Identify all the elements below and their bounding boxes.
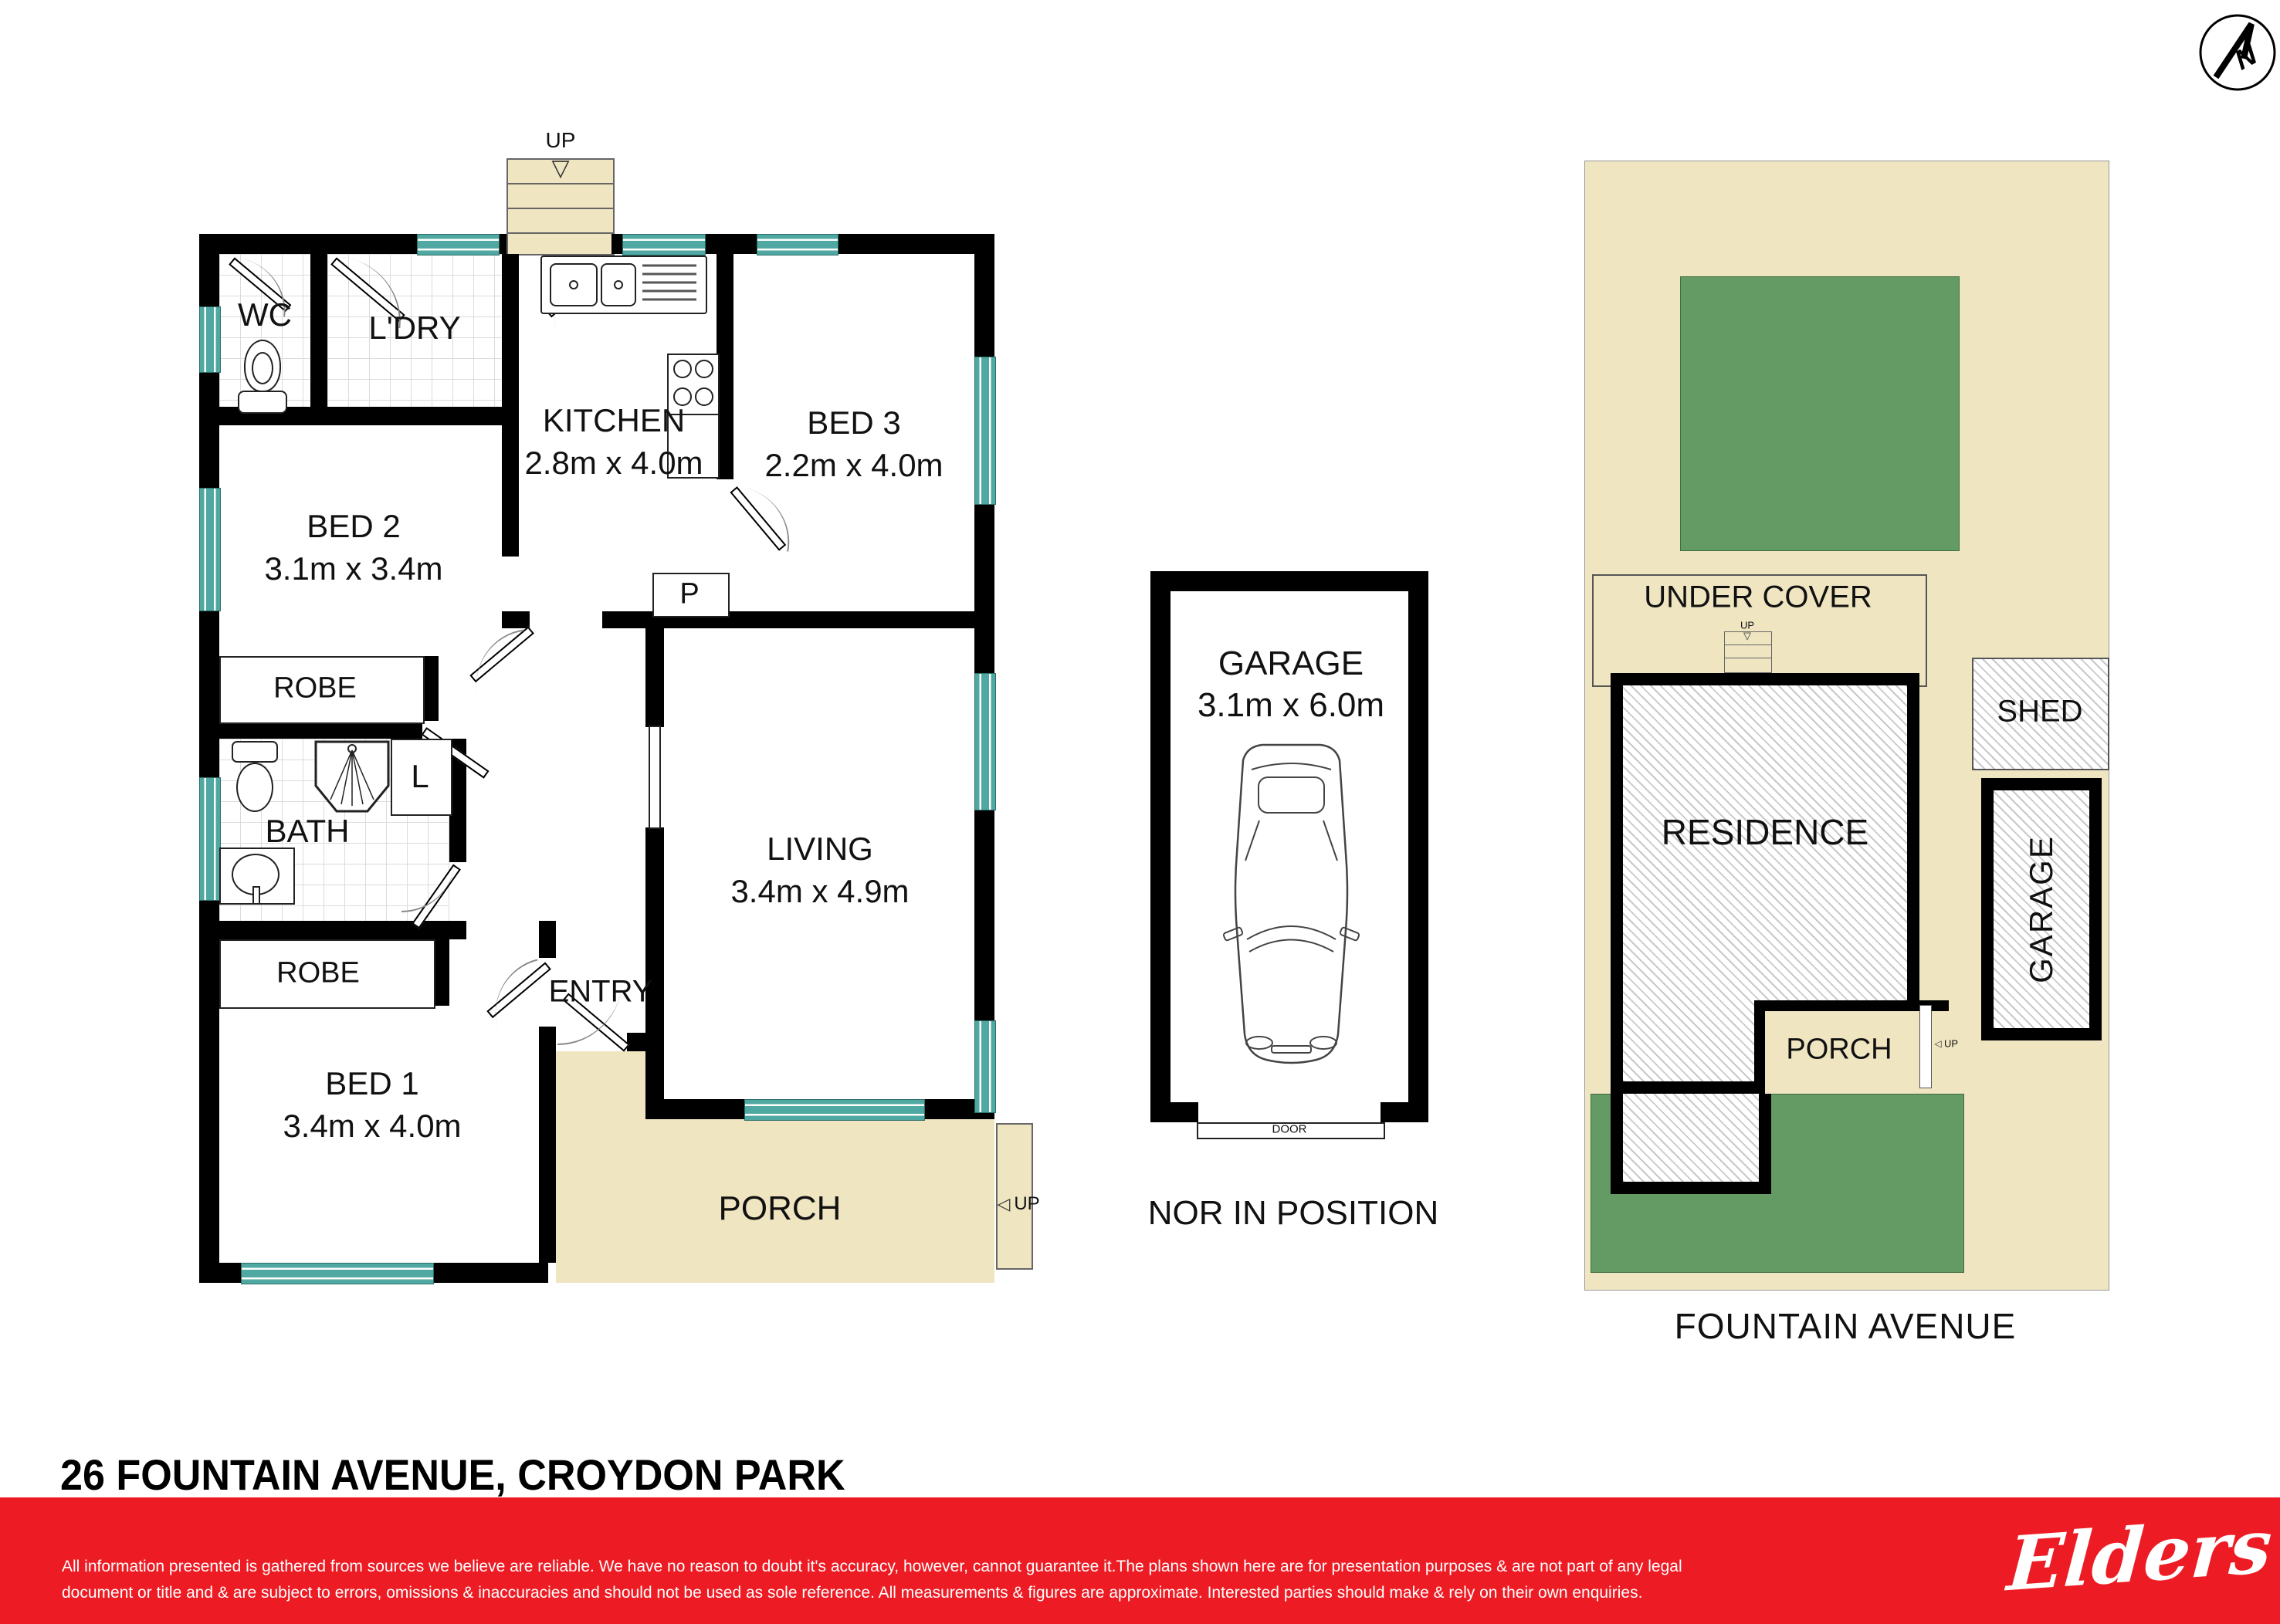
room-label-wc: WC [238,296,292,333]
bath-toilet-icon [236,763,273,812]
sink-drain-icon [614,280,623,289]
room-label-bath: BATH [266,813,350,850]
room-dims-bed3: 2.2m x 4.0m [764,447,943,484]
porch-up-arrow-icon: ◁ [998,1194,1011,1214]
porch-area [556,1051,647,1283]
window [974,1020,996,1113]
door-arc [469,629,532,693]
room-dims-living: 3.4m x 4.9m [730,873,909,910]
wall [627,1033,647,1051]
window [622,234,706,255]
room-label-kitchen: KITCHEN [543,402,685,439]
wall [502,611,530,628]
floorplan-page: UP ▽ [0,0,2280,1624]
wall [1150,571,1428,591]
wall [502,254,519,557]
page-title: 26 FOUNTAIN AVENUE, CROYDON PARK [60,1450,845,1500]
garage-door-label: DOOR [1272,1123,1307,1136]
stair-line [1725,645,1771,645]
room-label-bed1: BED 1 [325,1065,418,1102]
toilet-bowl-icon [252,352,273,384]
window [199,306,221,373]
car-top-view-icon [1224,737,1359,1069]
toilet-tank-icon [238,391,287,414]
window [974,673,996,810]
elders-logo: Elders [2004,1502,2275,1609]
garage-caption: NOR IN POSITION [1148,1194,1438,1233]
room-label-living: LIVING [767,831,873,868]
disclaimer-line2: document or title and & are subject to e… [62,1584,1642,1602]
window [757,234,838,255]
site-porch-up-label: UP [1944,1038,1958,1050]
room-dims-bed1: 3.4m x 4.0m [283,1108,461,1145]
site-plan: UNDER COVER UP ▽ RESIDENCE PORCH ◁ UP SH… [1575,0,2280,1389]
window [974,357,996,505]
porch-up-label: UP [1014,1193,1039,1215]
room-label-bed2: BED 2 [307,508,400,545]
site-porch-up-arrow-icon: ◁ [1934,1038,1941,1049]
sink-drainer-icon [642,261,696,307]
room-dims-kitchen: 2.8m x 4.0m [524,445,703,482]
up-arrow-icon: ▽ [551,155,569,182]
door-arc [732,487,798,552]
wall [1381,1102,1428,1122]
wall [539,1027,556,1263]
footer-bar: All information presented is gathered fr… [0,1497,2280,1624]
door-panel-living [649,726,661,829]
window [744,1099,925,1121]
window [199,488,221,611]
site-porch-label: PORCH [1786,1034,1892,1067]
room-label-entry: ENTRY [549,975,653,1010]
wall [199,234,219,1283]
robe-bed2-label: ROBE [273,672,357,705]
back-lawn [1680,276,1960,551]
pantry-label: P [679,578,699,611]
wall [645,611,664,727]
garage-plan: DOOR GARAGE 3.1m x 6.0m NOR IN POSITION [1120,540,1467,1274]
wall [310,254,327,407]
shower-icon [313,739,391,814]
linen-label: L [411,758,429,795]
wall [1408,571,1428,1122]
stair-line [508,183,613,184]
robe-bed1-label: ROBE [276,957,360,990]
stove-burner-icon [695,360,713,378]
wall [539,921,556,958]
window [417,234,500,255]
wall [645,827,664,1119]
garage-label: GARAGE [1218,645,1364,683]
disclaimer-line1: All information presented is gathered fr… [62,1558,1682,1576]
up-arrow-icon: ▽ [1743,630,1751,642]
stove-burner-icon [695,387,713,406]
stair-line [1725,658,1771,658]
site-garage-label: GARAGE [2023,835,2060,983]
main-floor-plan: UP ▽ [0,0,1120,1312]
room-dims-bed2: 3.1m x 3.4m [264,550,442,587]
stove-burner-icon [673,360,692,378]
site-porch-step [1919,1005,1932,1088]
wall [1150,1102,1198,1122]
room-label-ldry: L'DRY [368,310,460,347]
wall [1150,571,1170,1122]
residence-wing-overlap [1611,1094,1771,1194]
svg-text:N: N [2229,38,2262,76]
residence-label: RESIDENCE [1662,811,1868,853]
bath-toilet-tank-icon [232,741,278,763]
room-label-bed3: BED 3 [807,404,900,442]
back-stairs-up-label: UP [546,128,576,153]
window [241,1263,434,1284]
stair-line [508,208,613,209]
stair-line [508,232,613,234]
street-label: FOUNTAIN AVENUE [1675,1305,2017,1347]
wall [733,611,994,628]
window [199,777,221,901]
under-cover-label: UNDER COVER [1644,580,1872,615]
room-label-porch: PORCH [719,1189,842,1228]
garage-dims: 3.1m x 6.0m [1198,686,1384,725]
wall [199,921,466,939]
north-arrow-icon: N [2197,12,2278,93]
sink-drain-icon [569,280,578,289]
basin-tap-icon [252,886,260,905]
shed-label: SHED [1997,695,2082,729]
